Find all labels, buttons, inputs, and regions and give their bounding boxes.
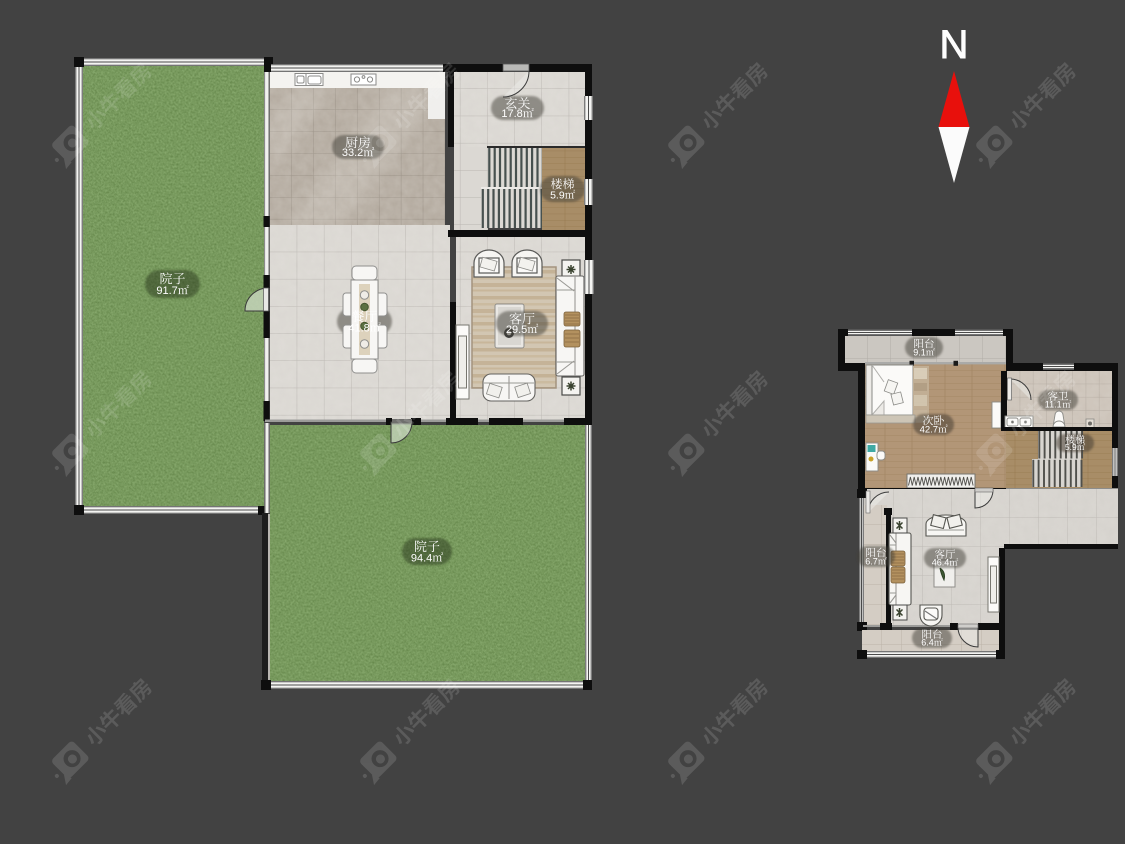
svg-text:6.7: 6.7: [865, 556, 878, 566]
svg-text:5.9: 5.9: [550, 190, 565, 202]
svg-text:9.1: 9.1: [913, 347, 926, 357]
svg-text:42.7: 42.7: [920, 425, 939, 436]
svg-text:6.4: 6.4: [921, 638, 934, 648]
svg-text:29.5: 29.5: [506, 324, 527, 336]
svg-text:91.7: 91.7: [156, 285, 177, 297]
svg-text:5.9: 5.9: [1065, 442, 1077, 452]
svg-text:46.4: 46.4: [932, 558, 950, 568]
svg-text:33.2: 33.2: [342, 147, 363, 159]
svg-text:17.8: 17.8: [501, 108, 522, 120]
svg-text:94.4: 94.4: [411, 552, 432, 564]
svg-text:N: N: [940, 23, 969, 67]
svg-text:41.8: 41.8: [348, 322, 369, 334]
